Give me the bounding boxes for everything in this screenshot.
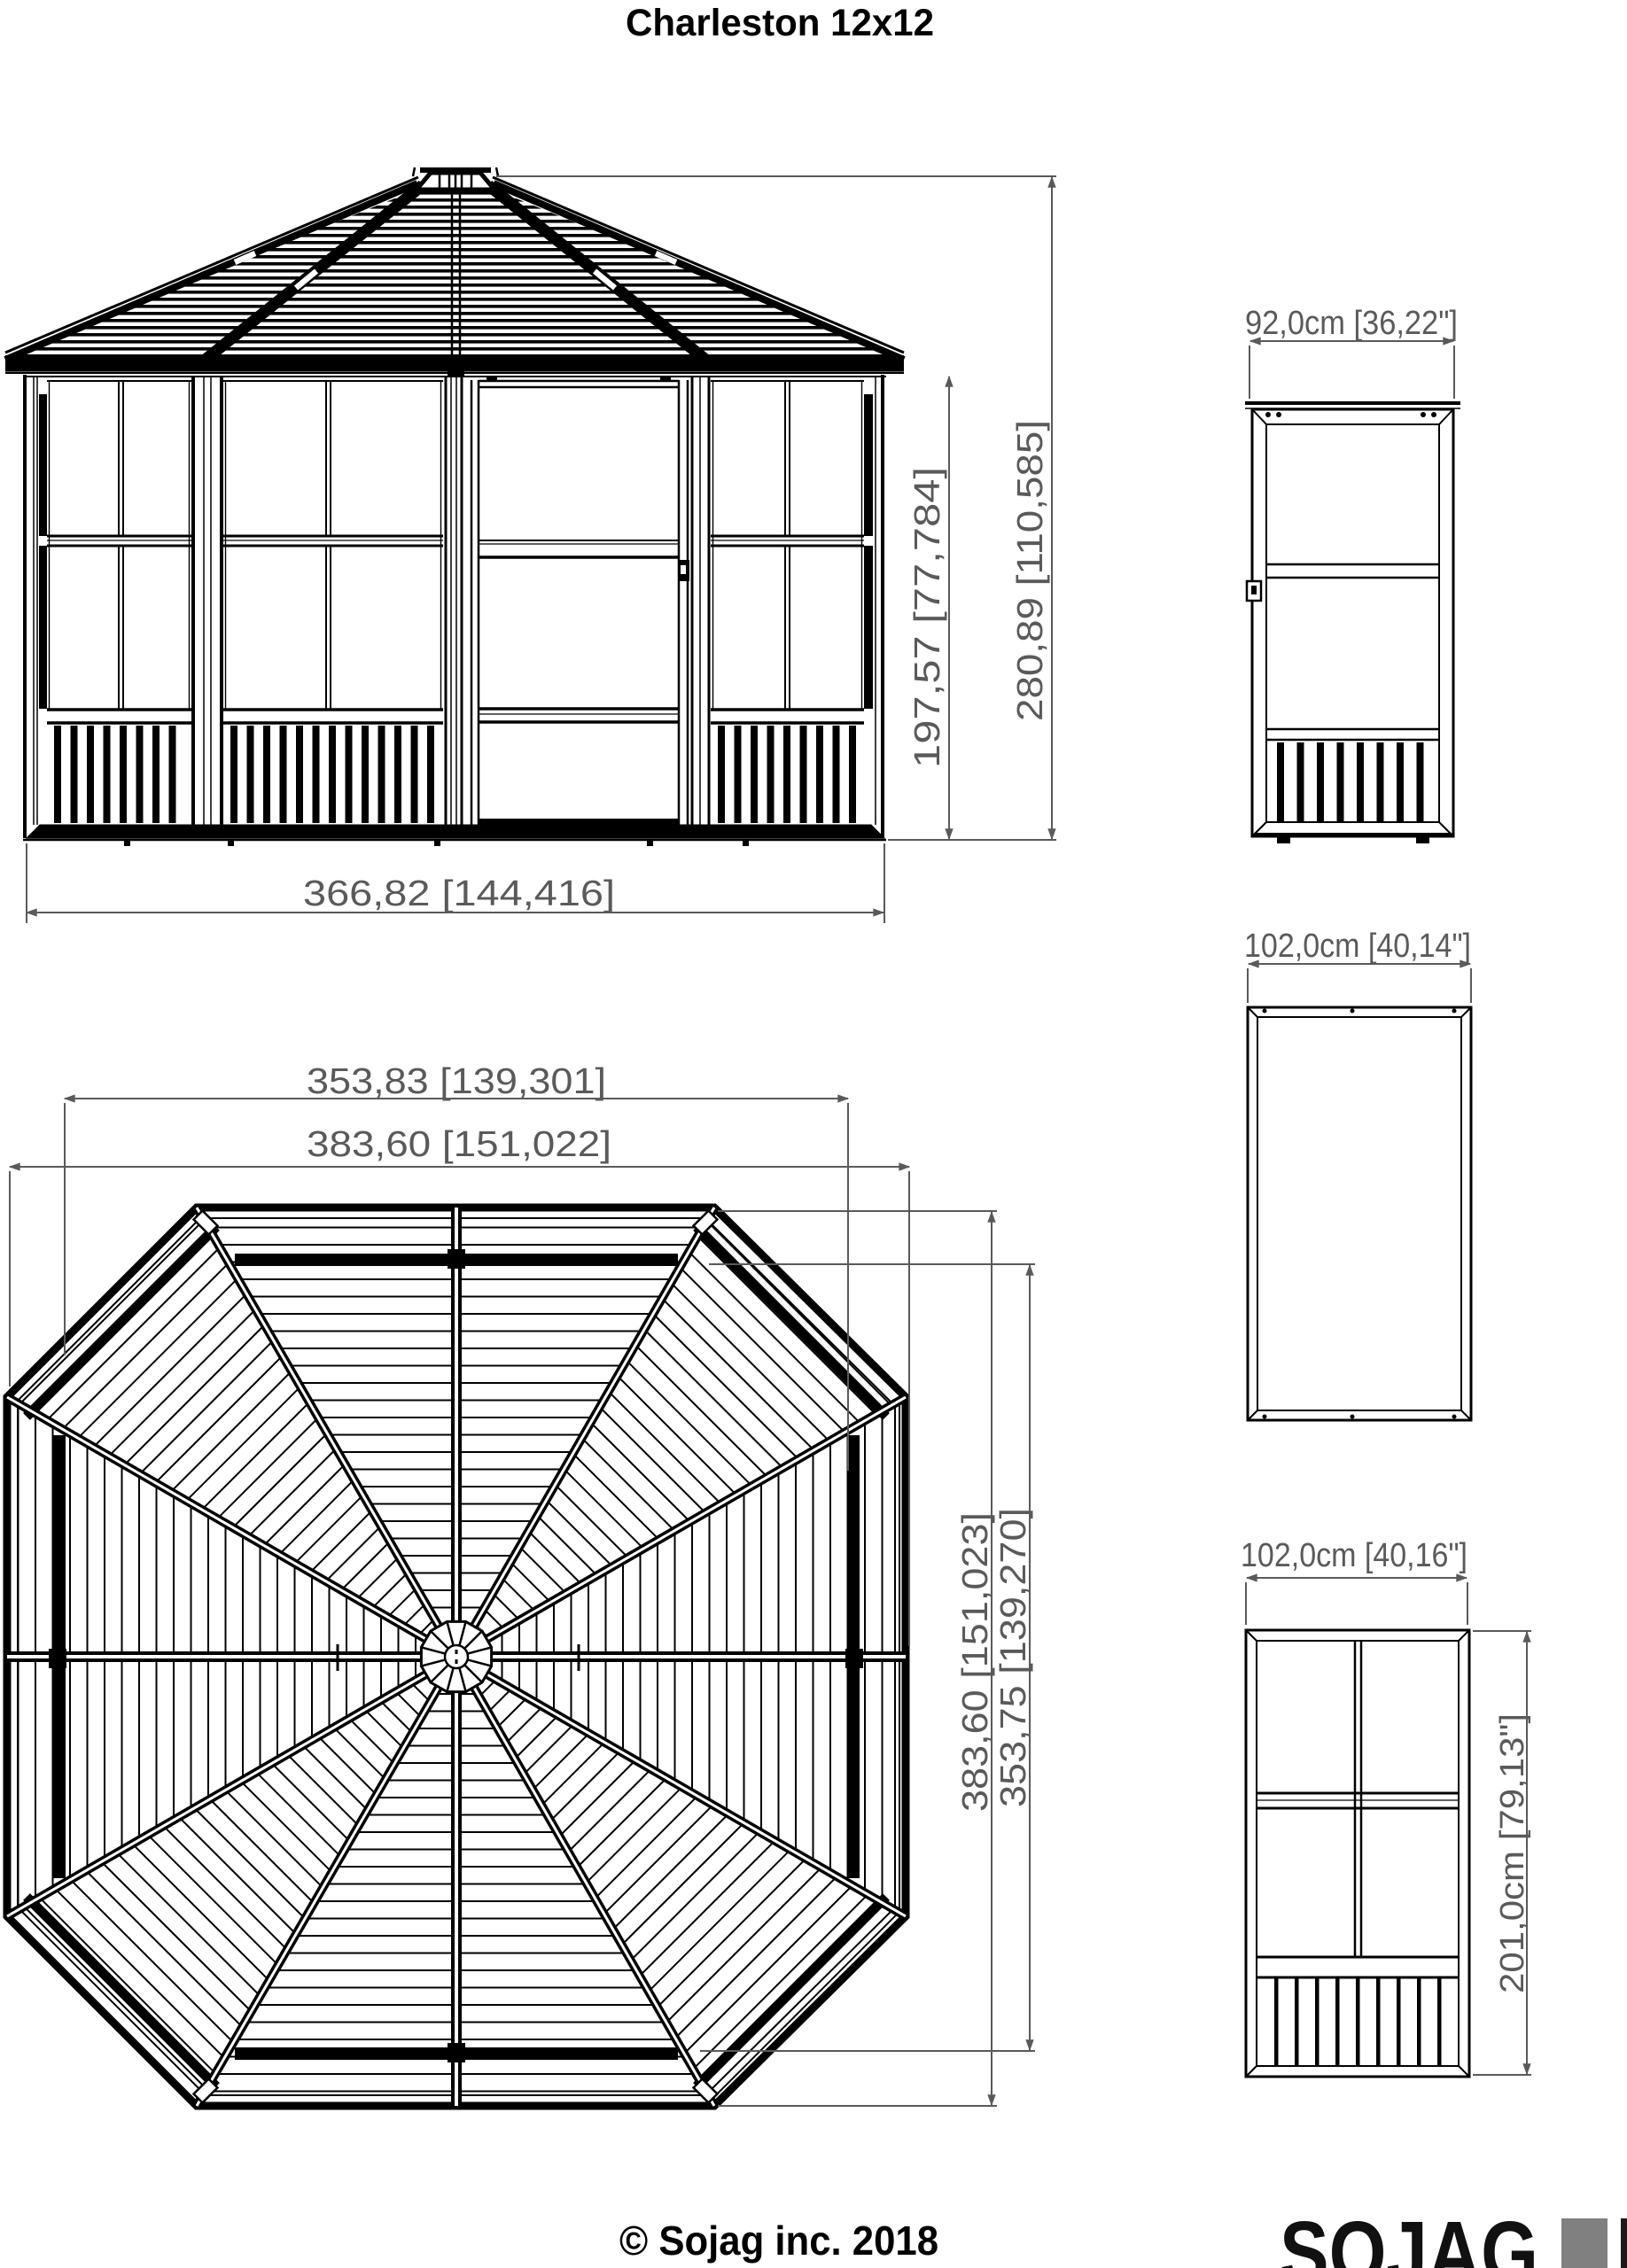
svg-text:353,83 [139,301]: 353,83 [139,301] [307,1060,606,1101]
svg-text:353,75 [139,270]: 353,75 [139,270] [993,1508,1033,1807]
svg-text:SOJAG: SOJAG [1280,2203,1538,2268]
svg-text:102,0cm [40,14"]: 102,0cm [40,14"] [1244,928,1471,965]
svg-text:197,57 [77,784]: 197,57 [77,784] [907,467,947,768]
svg-text:102,0cm [40,16"]: 102,0cm [40,16"] [1241,1537,1467,1574]
svg-text:© Sojag inc. 2018: © Sojag inc. 2018 [619,2218,938,2264]
svg-text:Charleston 12x12: Charleston 12x12 [626,2,934,44]
svg-text:92,0cm [36,22"]: 92,0cm [36,22"] [1245,305,1458,342]
svg-text:383,60 [151,022]: 383,60 [151,022] [307,1123,611,1164]
svg-text:383,60 [151,023]: 383,60 [151,023] [954,1512,995,1812]
svg-text:366,82 [144,416]: 366,82 [144,416] [303,873,615,913]
svg-text:280,89 [110,585]: 280,89 [110,585] [1009,420,1050,721]
svg-text:201,0cm [79,13"]: 201,0cm [79,13"] [1494,1713,1531,1993]
